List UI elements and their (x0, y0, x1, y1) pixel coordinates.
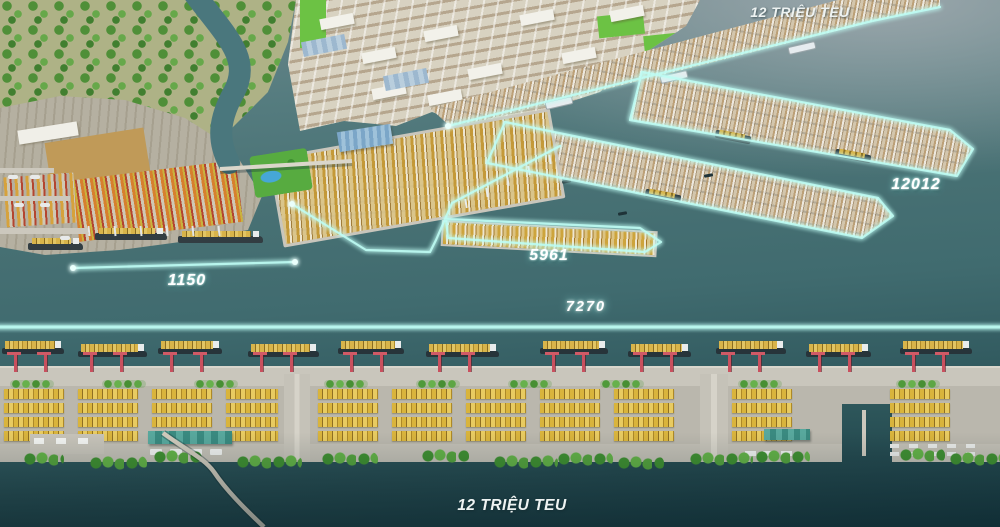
dimension-line-1150 (73, 262, 295, 268)
label-dim-7270: 7270 (526, 299, 646, 315)
pier-right-lower-outline (487, 122, 893, 238)
label-capacity-top: 12 TRIỆU TEU (700, 4, 900, 20)
coastal-pier-edge-line (448, 7, 940, 126)
dimension-endpoint (289, 201, 295, 207)
pier-right-upper-outline (630, 72, 973, 176)
dimension-endpoint (70, 265, 76, 271)
dimension-endpoint (445, 123, 451, 129)
label-dim-5961: 5961 (489, 247, 609, 265)
port-masterplan-render: 12 TRIỆU TEU 12012 5961 1150 7270 12 TRI… (0, 0, 1000, 527)
dimension-endpoint (292, 259, 298, 265)
label-dim-1150: 1150 (127, 272, 247, 290)
river (193, 0, 240, 163)
label-dim-12012: 12012 (856, 176, 976, 194)
label-capacity-bottom: 12 TRIỆU TEU (392, 497, 632, 515)
